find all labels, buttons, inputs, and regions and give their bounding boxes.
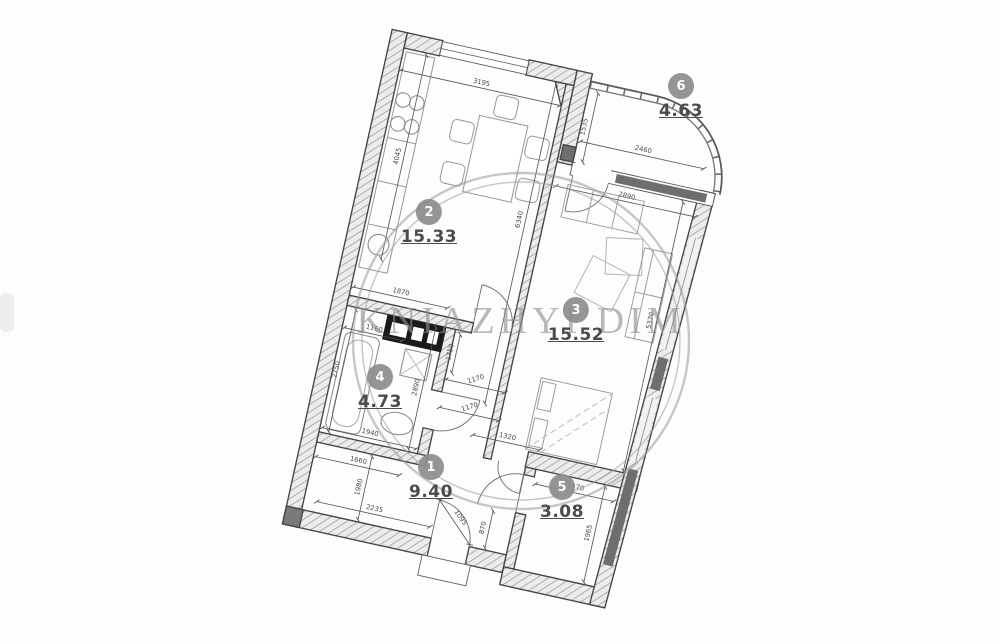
room-number-badge: 1	[418, 454, 444, 480]
room-number: 6	[676, 79, 685, 94]
room-number-badge: 5	[549, 474, 575, 500]
room-number-badge: 3	[563, 297, 589, 323]
room5-door	[478, 466, 525, 513]
bathroom-sink-icon	[379, 409, 415, 437]
kitchen-sink-icon	[366, 232, 391, 257]
dim-bath-right: 2890	[410, 378, 422, 397]
stove-icon	[389, 91, 425, 135]
entrance-door	[431, 500, 478, 547]
dim-kitchen-left: 4045	[392, 147, 404, 166]
dim-hall-room5: 1320	[498, 431, 517, 443]
dining-table	[438, 86, 557, 208]
dim-room5-right: 1965	[583, 524, 595, 543]
room-label-storage: 5 3.08	[540, 474, 584, 522]
room-number-badge: 2	[416, 199, 442, 225]
chair	[449, 119, 476, 145]
balcony-pier	[560, 145, 576, 163]
room-area: 15.52	[548, 325, 604, 345]
room-number: 2	[424, 205, 433, 220]
entrance-step	[418, 555, 471, 586]
room-number-badge: 6	[668, 73, 694, 99]
room-area: 15.33	[401, 227, 457, 247]
living-door	[493, 461, 526, 494]
room-number: 1	[426, 460, 435, 475]
room-label-kitchen: 2 15.33	[401, 199, 457, 247]
hall-bottom-wall-left	[283, 506, 432, 556]
washing-machine-icon	[400, 349, 432, 381]
hall-bottom-wall-right	[465, 547, 506, 573]
room-area: 9.40	[409, 482, 453, 502]
room-label-hallway: 1 9.40	[409, 454, 453, 502]
dim-corridor-b: 1170	[460, 401, 479, 414]
chair	[493, 94, 520, 120]
dim-corridor-a: 1170	[466, 373, 485, 386]
dim-hall-step: 870	[478, 521, 489, 535]
room-label-living-room: 3 15.52	[548, 297, 604, 345]
dim-hall-left: 1980	[353, 478, 365, 497]
dim-entrance-door: 1095	[452, 508, 468, 527]
floor-plan-page: 3195 1535 2460 2890 4045 6340 5370 1870 …	[0, 0, 1000, 644]
room-number: 3	[571, 303, 580, 318]
wardrobe	[561, 185, 644, 234]
room-number: 5	[557, 480, 566, 495]
room-number: 4	[375, 370, 384, 385]
room-area: 4.63	[659, 101, 703, 121]
chair	[439, 161, 466, 187]
room-area: 4.73	[358, 392, 402, 412]
room5-left-wall-bottom	[504, 513, 526, 569]
top-wall-pier-2	[526, 60, 577, 86]
room-number-badge: 4	[367, 364, 393, 390]
watermark-text: KNIAZHYI DIM	[356, 299, 685, 343]
room-label-balcony: 6 4.63	[659, 73, 703, 121]
corner-block	[283, 506, 304, 527]
chair	[514, 177, 541, 203]
room-label-bathroom: 4 4.73	[358, 364, 402, 412]
dim-kitchen-depth: 6340	[514, 210, 526, 229]
bed	[526, 378, 613, 465]
chair	[524, 135, 551, 161]
room-area: 3.08	[540, 502, 584, 522]
carousel-prev-button[interactable]	[0, 293, 14, 332]
